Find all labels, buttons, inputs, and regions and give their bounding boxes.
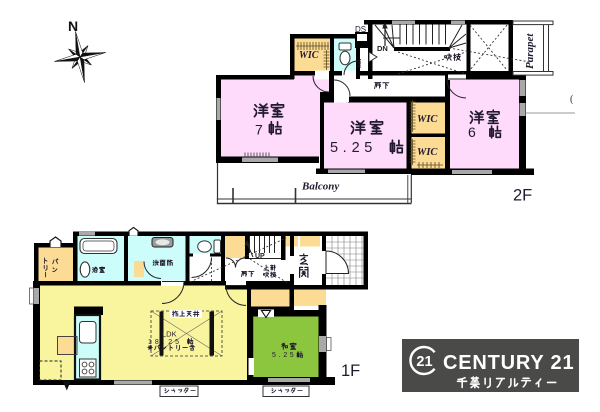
svg-text:2F: 2F — [513, 187, 532, 205]
svg-text:N: N — [68, 18, 78, 34]
svg-text:WIC: WIC — [299, 50, 319, 61]
svg-text:Sto.: Sto. — [357, 58, 363, 68]
svg-text:21: 21 — [416, 354, 432, 370]
svg-text:6: 6 — [468, 124, 476, 140]
svg-text:5.25: 5.25 — [272, 352, 294, 359]
svg-text:DS: DS — [355, 25, 366, 34]
svg-text:5.25: 5.25 — [330, 140, 372, 156]
svg-text:7: 7 — [255, 122, 263, 138]
svg-text:WIC: WIC — [417, 114, 438, 125]
svg-text:WIC: WIC — [417, 147, 438, 158]
svg-text:Balcony: Balcony — [301, 181, 339, 193]
svg-text:(: ( — [570, 94, 574, 105]
svg-text:UP: UP — [255, 253, 265, 260]
svg-text:1F: 1F — [341, 362, 360, 380]
svg-text:LDK: LDK — [162, 330, 177, 339]
svg-text:DN: DN — [377, 44, 388, 53]
svg-text:CENTURY 21: CENTURY 21 — [443, 352, 574, 374]
svg-text:Parapet: Parapet — [524, 33, 536, 69]
